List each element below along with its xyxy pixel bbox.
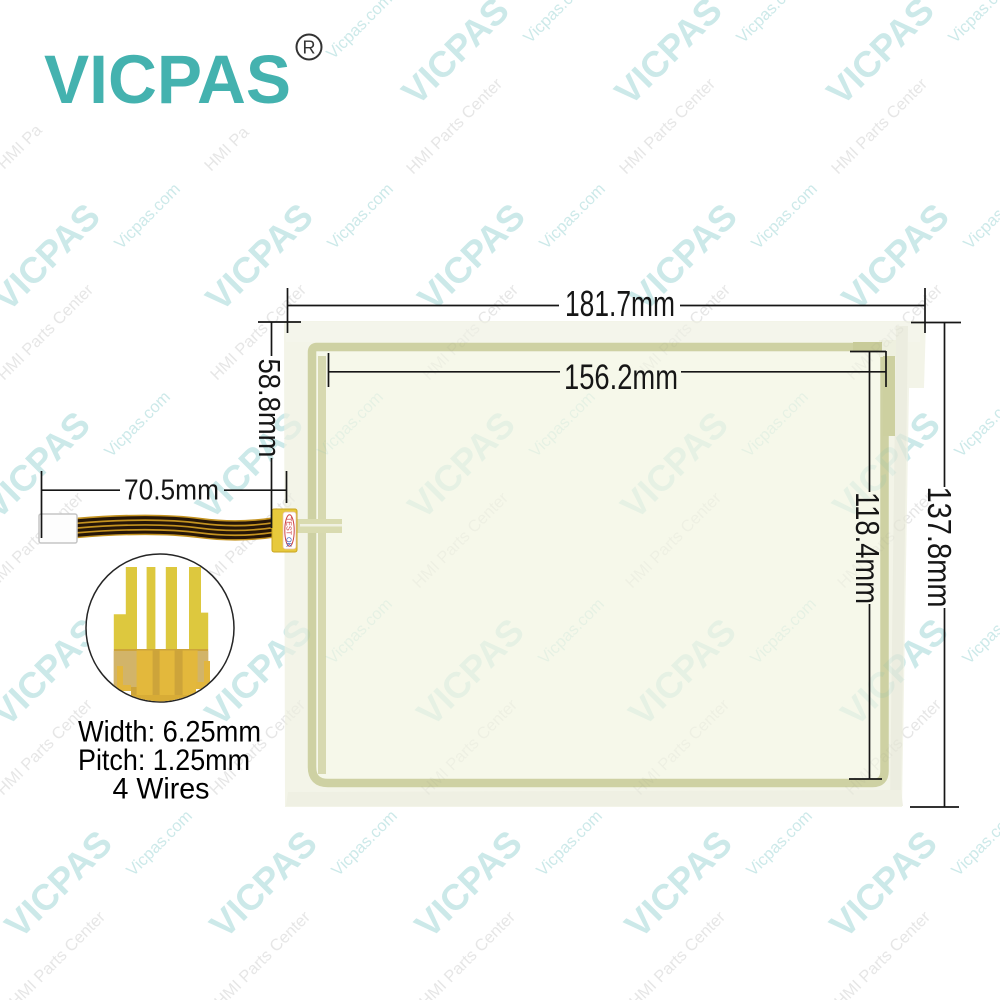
svg-text:137.8mm: 137.8mm — [921, 487, 958, 608]
svg-text:70.5mm: 70.5mm — [124, 475, 219, 507]
svg-text:4 Wires: 4 Wires — [113, 773, 210, 806]
svg-text:181.7mm: 181.7mm — [565, 283, 675, 324]
svg-text:156.2mm: 156.2mm — [564, 358, 678, 397]
svg-text:VICPAS: VICPAS — [44, 41, 291, 118]
svg-text:OK: OK — [285, 537, 292, 547]
svg-text:R: R — [303, 38, 316, 58]
svg-text:TEST: TEST — [285, 517, 292, 536]
svg-text:58.8mm: 58.8mm — [252, 359, 287, 458]
svg-text:118.4mm: 118.4mm — [849, 492, 886, 604]
